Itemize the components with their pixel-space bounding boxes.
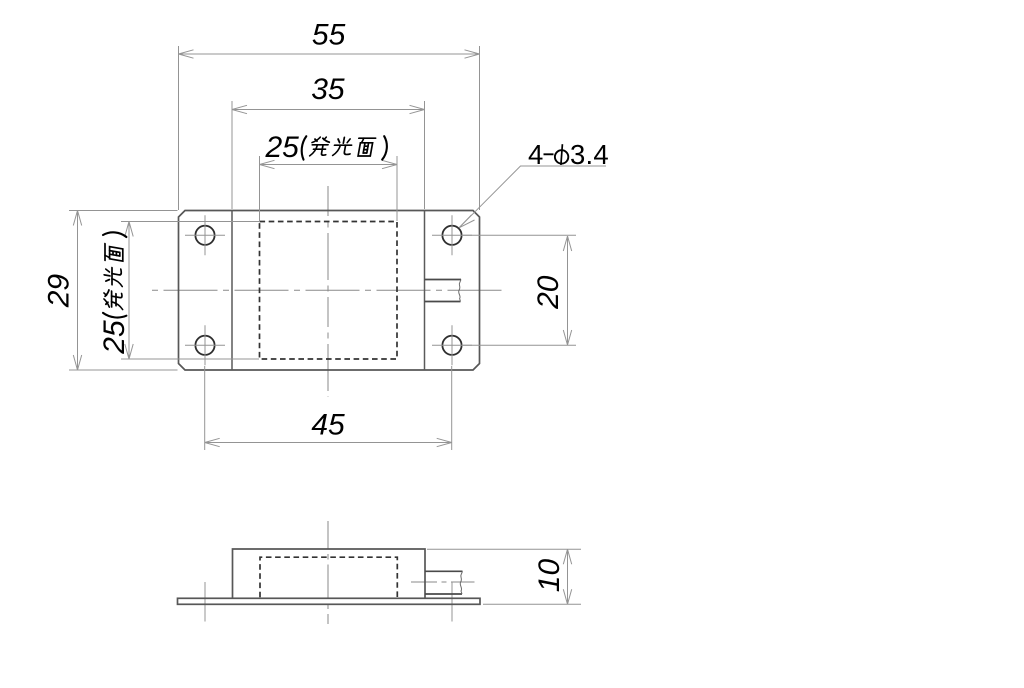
svg-text:3.4: 3.4 bbox=[570, 139, 609, 170]
svg-text:29: 29 bbox=[43, 274, 76, 309]
svg-text:35: 35 bbox=[311, 73, 345, 106]
svg-text:45: 45 bbox=[311, 408, 345, 441]
svg-text:20: 20 bbox=[532, 275, 565, 310]
svg-text:10: 10 bbox=[533, 559, 566, 593]
svg-text:55: 55 bbox=[312, 19, 346, 52]
svg-text:4: 4 bbox=[528, 139, 543, 170]
